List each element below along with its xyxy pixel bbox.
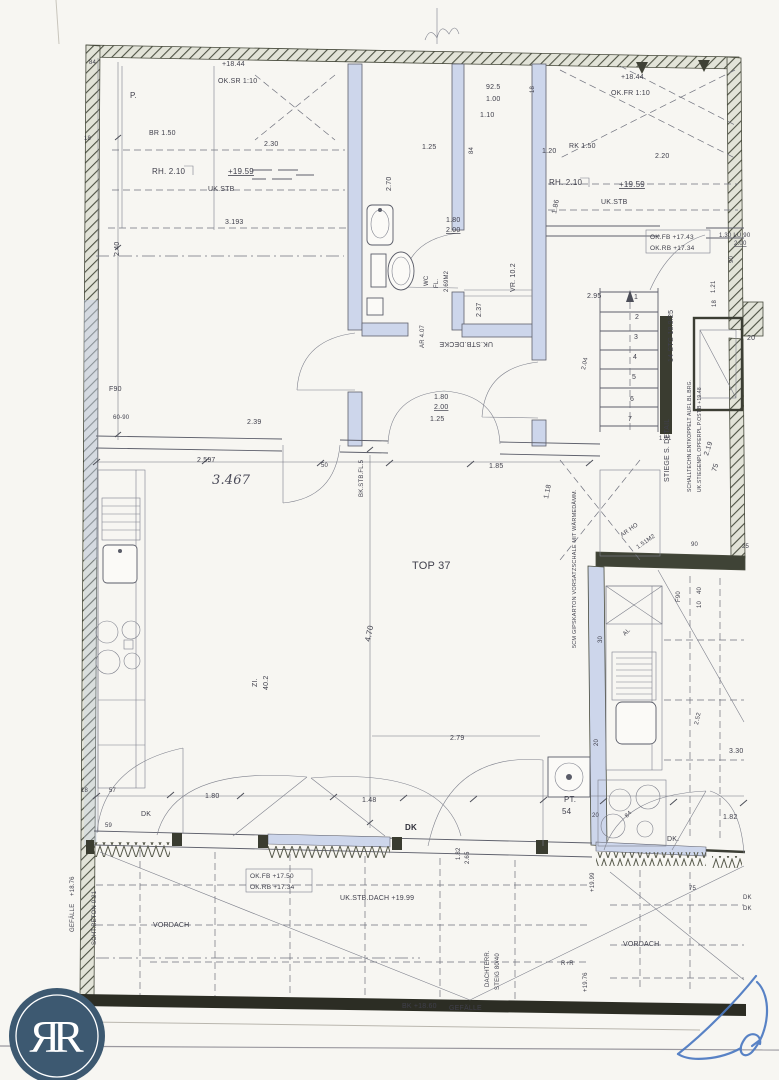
plan-label: 1.86 (551, 199, 561, 215)
plan-label: OK.SR 1:10 (218, 78, 257, 85)
plan-label: 1.00 (486, 96, 500, 103)
plan-label: 20 (747, 335, 755, 342)
plan-label: FL. (434, 279, 440, 288)
plan-label: UK.STB (208, 186, 235, 193)
plan-label: 92.5 (486, 84, 500, 91)
plan-label: 3.193 (225, 219, 244, 226)
plan-label: AL (622, 627, 632, 637)
plan-label: +19.99 (590, 872, 596, 892)
floor-plan-drawing: +18.44OK.SR 1:1084P.18BR 1.502.30RH. 2.1… (0, 0, 779, 1080)
plan-label: 2.39 (247, 419, 261, 426)
stairs (560, 288, 742, 560)
plan-label: GEFÄLLE (69, 904, 76, 932)
plan-label: UK.STB (601, 199, 628, 206)
outer-walls (80, 45, 763, 1016)
plan-label: DK (743, 906, 752, 912)
plan-label: 4 (633, 354, 637, 361)
plan-label: UK.STIEGENPL.OPFERPL.P.OST.B +19.48 (697, 387, 703, 492)
plan-label: 1.21 (711, 280, 717, 293)
kitchen-sink-right (616, 702, 656, 744)
plan-label: AR HO (620, 522, 640, 538)
plan-label: 75 (689, 886, 697, 892)
plan-label: DK (405, 823, 417, 832)
plan-label: 40 (697, 586, 703, 594)
plan-label: 1.18 (543, 484, 553, 500)
plan-label: 2.00 (446, 227, 460, 234)
plan-label: 18 (712, 299, 718, 307)
signature (678, 976, 767, 1059)
bottom-wall (86, 831, 742, 868)
plan-label: 18 (530, 85, 536, 93)
plan-label: 1.25 (430, 416, 444, 423)
plan-label: 2.95 (587, 293, 601, 300)
plan-label: +18.76 (70, 876, 76, 896)
plan-label: DACHTERR. (485, 950, 491, 987)
plan-label: 1.82 (723, 814, 737, 821)
scanned-floor-plan-page: +18.44OK.SR 1:1084P.18BR 1.502.30RH. 2.1… (0, 0, 779, 1080)
plan-label: 1.82 (456, 847, 462, 860)
plan-label: STEIG 80/40 (495, 953, 501, 990)
plan-label: WC (424, 275, 430, 286)
plan-label: 2.69M2 (444, 270, 450, 292)
plan-label: 1.20 (542, 148, 556, 155)
plan-label: 2.79 (450, 735, 464, 742)
plan-label: 2.30 (264, 141, 278, 148)
plan-label: 5 (632, 374, 636, 381)
plan-label: BR 1.50 (149, 130, 176, 137)
plan-label: DK. (667, 836, 679, 843)
plan-label: DK (141, 811, 151, 818)
bathroom-fixtures (367, 205, 414, 315)
plan-label: +19.59 (228, 167, 254, 176)
plan-label: 7 (628, 416, 632, 423)
plan-label: 2.37 (476, 303, 483, 317)
plan-label: OK.RB +17.34 (650, 245, 695, 252)
dimension-lines (93, 62, 747, 892)
plan-label: DK (743, 895, 752, 901)
plan-label: VORDACH (623, 941, 659, 948)
plan-label: F90 (676, 591, 682, 602)
plan-label: OK.FR 1:10 (611, 90, 650, 97)
plan-label: 60-90 (113, 415, 130, 421)
plan-label: 84 (89, 60, 97, 66)
plan-label: 84 (624, 810, 634, 820)
kitchen-left (96, 470, 145, 788)
plan-label: GEFÄLLE (449, 1004, 482, 1012)
plan-label: 40.2 (263, 676, 270, 690)
plan-label: 90 (729, 255, 735, 263)
plan-label: 1.10 (480, 112, 494, 119)
plan-label: 14 STG 18.9/25 (668, 310, 675, 362)
plan-label: 2.52 (694, 712, 703, 726)
plan-label: 3.30 (729, 748, 743, 755)
plan-label: RK 1.50 (569, 143, 596, 150)
plan-label: 25 (742, 544, 750, 550)
plan-label: 84 (469, 146, 475, 154)
plan-label: 3 (634, 334, 638, 341)
plan-label: 1.80 (434, 394, 448, 401)
plan-label: 6 (630, 396, 634, 403)
plan-label: PT. (564, 795, 576, 804)
plan-label: 20 (592, 813, 600, 819)
plan-label: 75 (711, 463, 720, 473)
plan-label: 10 (697, 600, 703, 608)
plan-label: F90 (109, 386, 122, 393)
logo: ЯR (9, 988, 105, 1080)
plan-label: P. (130, 91, 137, 100)
plan-label: 2.04 (581, 357, 590, 371)
plan-label: RH. 2.10 (549, 178, 583, 187)
plan-label: 18 (84, 136, 92, 142)
plan-label: STIEGE S. DETAIL (664, 419, 671, 482)
plan-label: RH. 2.10 (152, 167, 186, 176)
ceiling-dashes (96, 8, 738, 256)
plan-label: OK.RB +17.34 (250, 884, 295, 891)
plan-label: OK.FB +17.43 (650, 234, 694, 241)
plan-label: +18.44 (222, 61, 245, 68)
plan-label: 1.80 (446, 217, 460, 224)
plan-label: 2.70 (386, 177, 393, 191)
plan-label: 1.85 (489, 463, 503, 470)
plan-label: 90 (691, 542, 699, 548)
interior-walls (86, 58, 744, 868)
plan-label: 1.25 (422, 144, 436, 151)
plan-label: SCHT.BETON 0.21 (92, 890, 98, 945)
plan-label: SCHALLTECHN.ENTKOPPELT AUFL.BL.BRG. (687, 380, 693, 492)
plan-label: 20 (594, 738, 600, 746)
logo-monogram: ЯR (29, 1011, 84, 1062)
plan-label: 5CM GIPSKARTON VORSATZSCHALE MIT WÄRMEDÄ… (571, 489, 578, 648)
plan-label: BK +18.60 (402, 1003, 437, 1010)
plan-label: 59 (105, 823, 113, 829)
plan-label: UK.STB.DECKE (439, 340, 493, 347)
plan-label: 4.70 (363, 624, 375, 642)
plan-label: 1 (634, 294, 638, 301)
plan-label: TOP 37 (412, 560, 451, 572)
plan-label: 2.20 (655, 153, 669, 160)
plan-label: R+R (561, 961, 574, 967)
plan-label: VORDACH (153, 922, 189, 929)
wc-cistern (371, 254, 386, 287)
plan-label: AR 4.07 (420, 324, 426, 348)
plan-label: 2.00 (734, 241, 747, 247)
plan-label: BK.STB.FL.5 (359, 459, 365, 497)
plan-label: 57 (109, 788, 117, 794)
plan-label: 2.19 (703, 441, 714, 457)
plan-label: 1.30 LU 90 (719, 233, 751, 239)
plan-label: 54 (562, 807, 572, 816)
label-layer: +18.44OK.SR 1:1084P.18BR 1.502.30RH. 2.1… (69, 60, 755, 1012)
plan-label: 3.467 (212, 473, 251, 488)
plan-label: UK.STB.DACH +19.99 (340, 895, 414, 902)
plan-label: OK.FB +17.50 (250, 873, 294, 880)
stove-left (96, 621, 140, 674)
plan-label: 2.65 (465, 851, 471, 864)
plan-label: 30 (598, 635, 604, 643)
plan-label: 2.40 (114, 242, 121, 256)
plan-label: 1.51M2 (636, 533, 657, 550)
plan-label: 1.80 (205, 793, 219, 800)
plan-label: ZI. (252, 678, 259, 687)
washer-pt (548, 757, 590, 797)
plan-label: +19.76 (583, 972, 589, 992)
plan-label: 2.597 (197, 457, 216, 464)
plan-label: +19.59 (619, 180, 645, 189)
plan-label: VR. 10.2 (510, 263, 517, 292)
plan-label: 18 (81, 788, 89, 794)
plan-label: 50 (321, 463, 329, 469)
plan-label: 1.48 (362, 797, 376, 804)
plan-label: 2 (635, 314, 639, 321)
plan-label: +18.44 (621, 74, 644, 81)
plan-label: 2.00 (434, 404, 448, 411)
